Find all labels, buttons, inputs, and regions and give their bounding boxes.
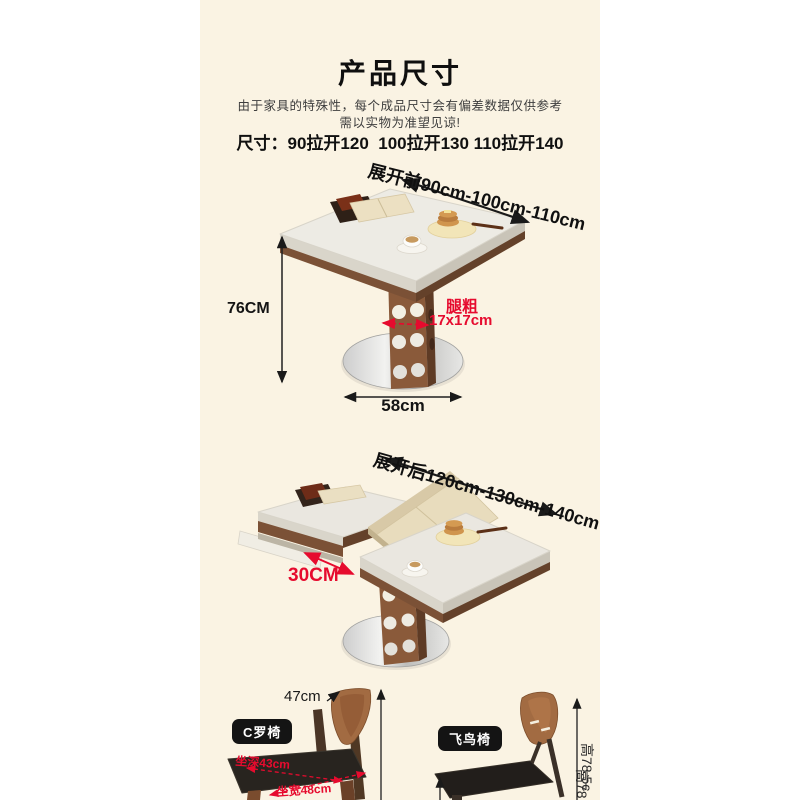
content-panel: 产品尺寸 由于家具的特殊性，每个成品尺寸会有偏差数据仅供参考 需以实物为准望见谅… (200, 0, 600, 800)
chair-right-badge: 飞鸟椅 (438, 726, 502, 751)
base-width-label: 58cm (373, 396, 433, 416)
table-height-label: 76CM (227, 300, 270, 318)
chair-left-badge: C罗椅 (232, 719, 292, 744)
table-after-illustration (200, 445, 600, 685)
back-width-label: 47cm (284, 688, 321, 705)
page-title: 产品尺寸 (200, 52, 600, 92)
page: 产品尺寸 由于家具的特殊性，每个成品尺寸会有偏差数据仅供参考 需以实物为准望见谅… (0, 0, 800, 800)
extension-label: 30CM (288, 565, 339, 587)
chair-right-height-label: 高78 (572, 769, 592, 799)
leg-size-label: 17x17cm (429, 312, 492, 329)
